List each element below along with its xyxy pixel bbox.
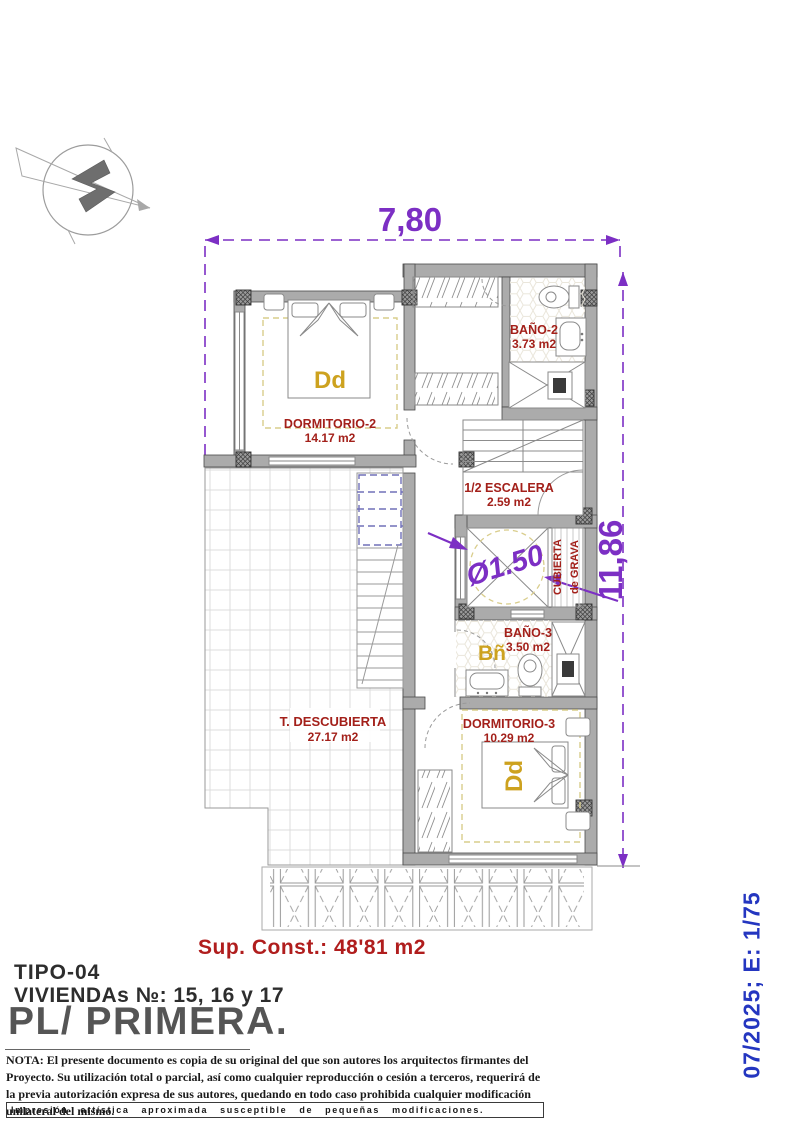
room-escalera: 1/2 ESCALERA 2.59 m2 — [463, 420, 583, 515]
separator-line — [5, 1049, 250, 1050]
gravel-roof-shaft: CUBIERTA de GRAVA — [552, 528, 583, 607]
toilet — [518, 654, 542, 696]
floor-plan-sheet: 7,80 11,86 — [0, 0, 800, 1133]
disclaimer-box: Impresión artística aproximada susceptib… — [6, 1102, 544, 1118]
room-name: BAÑO-3 — [504, 625, 552, 640]
plan-drawing: 7,80 11,86 — [0, 0, 800, 1133]
floor-title: PL/ PRIMERA. — [8, 1000, 288, 1044]
north-arrow-icon — [16, 138, 150, 244]
sink — [556, 318, 586, 356]
room-bano-3: Bñ BAÑO-3 3.50 m2 — [456, 620, 585, 697]
width-dimension-label: 7,80 — [378, 201, 442, 238]
window — [269, 457, 355, 465]
room-name: T. DESCUBIERTA — [280, 714, 387, 729]
shaft-label-2: de GRAVA — [569, 540, 581, 594]
room-name: DORMITORIO-2 — [284, 417, 376, 431]
room-area: 3.50 m2 — [506, 640, 550, 654]
room-area: 14.17 m2 — [305, 431, 356, 445]
bed-tag: Dd — [501, 760, 528, 792]
window — [511, 610, 544, 618]
room-name: BAÑO-2 — [510, 322, 558, 337]
shower — [552, 622, 585, 696]
room-name: DORMITORIO-3 — [463, 717, 555, 731]
terrace-stair — [357, 473, 403, 688]
room-area: 27.17 m2 — [308, 730, 359, 744]
toilet — [539, 286, 579, 308]
height-dimension-label: 11,86 — [592, 520, 629, 601]
louver-strip — [262, 867, 592, 930]
room-area: 10.29 m2 — [484, 731, 535, 745]
window — [449, 855, 577, 863]
room-area: 2.59 m2 — [487, 495, 531, 509]
window — [235, 312, 244, 450]
shaft-label-1: CUBIERTA — [552, 539, 564, 595]
sink — [466, 670, 508, 696]
shower — [509, 362, 585, 408]
room-area: 3.73 m2 — [512, 337, 556, 351]
date-scale-label: 07/2025; E: 1/75 — [739, 891, 766, 1078]
room-name: 1/2 ESCALERA — [464, 481, 554, 495]
bath-tag: Bñ — [478, 642, 506, 665]
height-dimension: 11,86 — [592, 272, 640, 868]
type-label: TIPO-04 — [14, 961, 100, 985]
built-area-label: Sup. Const.: 48'81 m2 — [198, 936, 426, 960]
bed-tag: Dd — [314, 367, 346, 394]
